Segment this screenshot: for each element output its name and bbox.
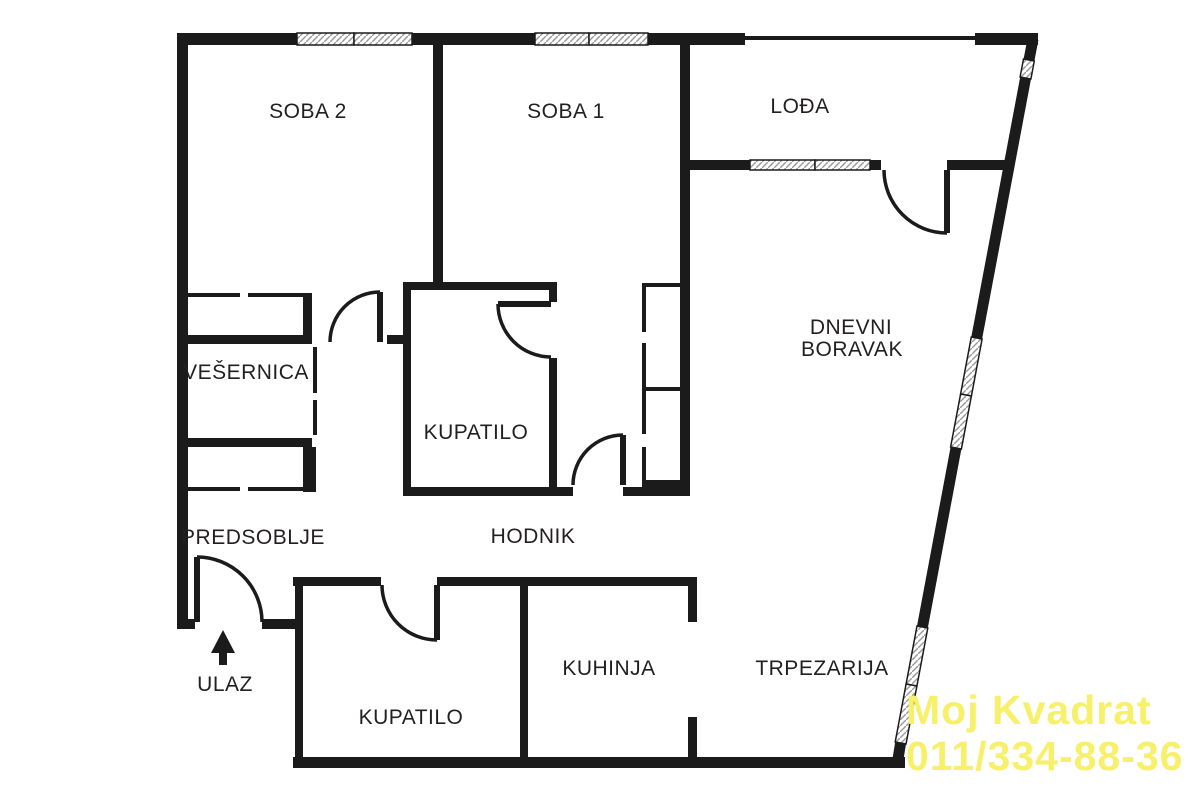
wall-closetr-divider xyxy=(642,387,680,391)
wall-hodnik-bottom-1 xyxy=(293,577,381,586)
entrance-label: ULAZ xyxy=(197,673,253,696)
room-label-lodja: LOĐA xyxy=(770,95,829,118)
wall-vesernica-right-1 xyxy=(313,347,317,393)
wall-closeta-top-1 xyxy=(182,293,240,297)
wall-vesernica-right-2 xyxy=(313,400,317,435)
window-lodja-pane1 xyxy=(750,160,815,170)
door-arc-kupatilo-lower xyxy=(382,585,437,640)
window-slant-top xyxy=(1020,59,1034,79)
door-arc-passage xyxy=(573,435,623,485)
wall-soba-divider xyxy=(433,45,443,282)
room-label-soba1: SOBA 1 xyxy=(527,100,605,123)
wall-top-1 xyxy=(177,33,297,45)
watermark-line2: 011/334-88-36 xyxy=(906,733,1183,779)
window-soba1-pane2 xyxy=(589,33,648,45)
wall-kupatilo-lower-right xyxy=(520,585,528,765)
floorplan-svg: SOBA 2 SOBA 1 LOĐA DNEVNI BORAVAK VEŠERN… xyxy=(0,0,1200,801)
wall-kuhinja-stub-top xyxy=(688,577,697,622)
wall-lodja-bottom-1 xyxy=(690,160,750,170)
wall-closetb-bottom-1 xyxy=(182,487,240,491)
doors xyxy=(197,170,947,640)
wall-bottom xyxy=(293,757,905,768)
wall-closetb-bottom-2 xyxy=(248,487,303,491)
window-slant-low-pane1 xyxy=(906,626,928,686)
arrow-up-icon xyxy=(211,630,235,665)
wall-closetr-left-3 xyxy=(642,447,646,482)
watermark: Moj Kvadrat 011/334-88-36 xyxy=(906,687,1183,779)
wall-vesernica-bottom xyxy=(182,438,312,447)
wall-slant-2 xyxy=(977,78,1026,338)
wall-lowerleft-vertical xyxy=(295,577,303,767)
wall-kupatilo-upper-right-1 xyxy=(549,282,557,302)
wall-closet-cap xyxy=(642,480,690,493)
wall-kupatilo-upper-top xyxy=(403,282,557,290)
room-label-predsoblje: PREDSOBLJE xyxy=(181,526,325,549)
room-labels: SOBA 2 SOBA 1 LOĐA DNEVNI BORAVAK VEŠERN… xyxy=(181,95,903,729)
window-lodja-pane2 xyxy=(815,160,870,170)
room-label-soba2: SOBA 2 xyxy=(269,100,347,123)
door-arc-soba2 xyxy=(330,292,380,342)
floorplan-image: SOBA 2 SOBA 1 LOĐA DNEVNI BORAVAK VEŠERN… xyxy=(0,0,1200,801)
wall-kupatilo-upper-left xyxy=(403,282,411,495)
door-arc-kupatilo-upper xyxy=(498,304,551,357)
wall-dnevni-divider xyxy=(680,45,690,493)
room-label-trpezarija: TRPEZARIJA xyxy=(755,657,888,680)
room-label-vesernica: VEŠERNICA xyxy=(183,361,309,384)
wall-soba2-bottom-1 xyxy=(182,335,312,344)
room-label-kupatilo-lower: KUPATILO xyxy=(359,706,464,729)
wall-top-2 xyxy=(412,33,535,45)
wall-closeta-right xyxy=(303,293,312,344)
wall-slant-1 xyxy=(1029,39,1033,60)
wall-closetb-right xyxy=(303,447,316,492)
room-label-dnevni-line1: DNEVNI xyxy=(810,316,892,339)
wall-soba2-bottom-2 xyxy=(387,335,403,344)
wall-lodja-bottom-2 xyxy=(870,160,881,170)
window-soba2-pane2 xyxy=(354,33,412,45)
wall-slant-3 xyxy=(922,448,956,627)
wall-top-3 xyxy=(648,33,745,45)
window-slant-mid-pane1 xyxy=(961,337,983,396)
wall-closeta-top-2 xyxy=(248,293,303,297)
room-label-kupatilo-upper: KUPATILO xyxy=(424,421,529,444)
wall-closetr-top xyxy=(642,283,680,287)
room-label-hodnik: HODNIK xyxy=(491,525,576,548)
wall-slant-4 xyxy=(898,743,901,762)
wall-lodja-parapet xyxy=(745,36,975,40)
window-soba2-pane1 xyxy=(297,33,354,45)
room-label-dnevni-line2: BORAVAK xyxy=(801,338,903,361)
door-arc-lodja xyxy=(884,170,947,233)
wall-closetr-left-1 xyxy=(642,287,646,332)
window-slant-mid-pane2 xyxy=(951,394,972,449)
room-label-kuhinja: KUHINJA xyxy=(562,657,655,680)
watermark-line1: Moj Kvadrat xyxy=(906,687,1152,733)
wall-kupatilo-upper-right-2 xyxy=(549,358,557,495)
wall-entrance-left xyxy=(177,619,195,629)
door-arc-entrance xyxy=(197,557,262,622)
wall-hodnik-bottom-2 xyxy=(437,577,692,586)
window-soba1-pane1 xyxy=(535,33,589,45)
wall-kupatilo-upper-bottom-1 xyxy=(403,487,573,496)
